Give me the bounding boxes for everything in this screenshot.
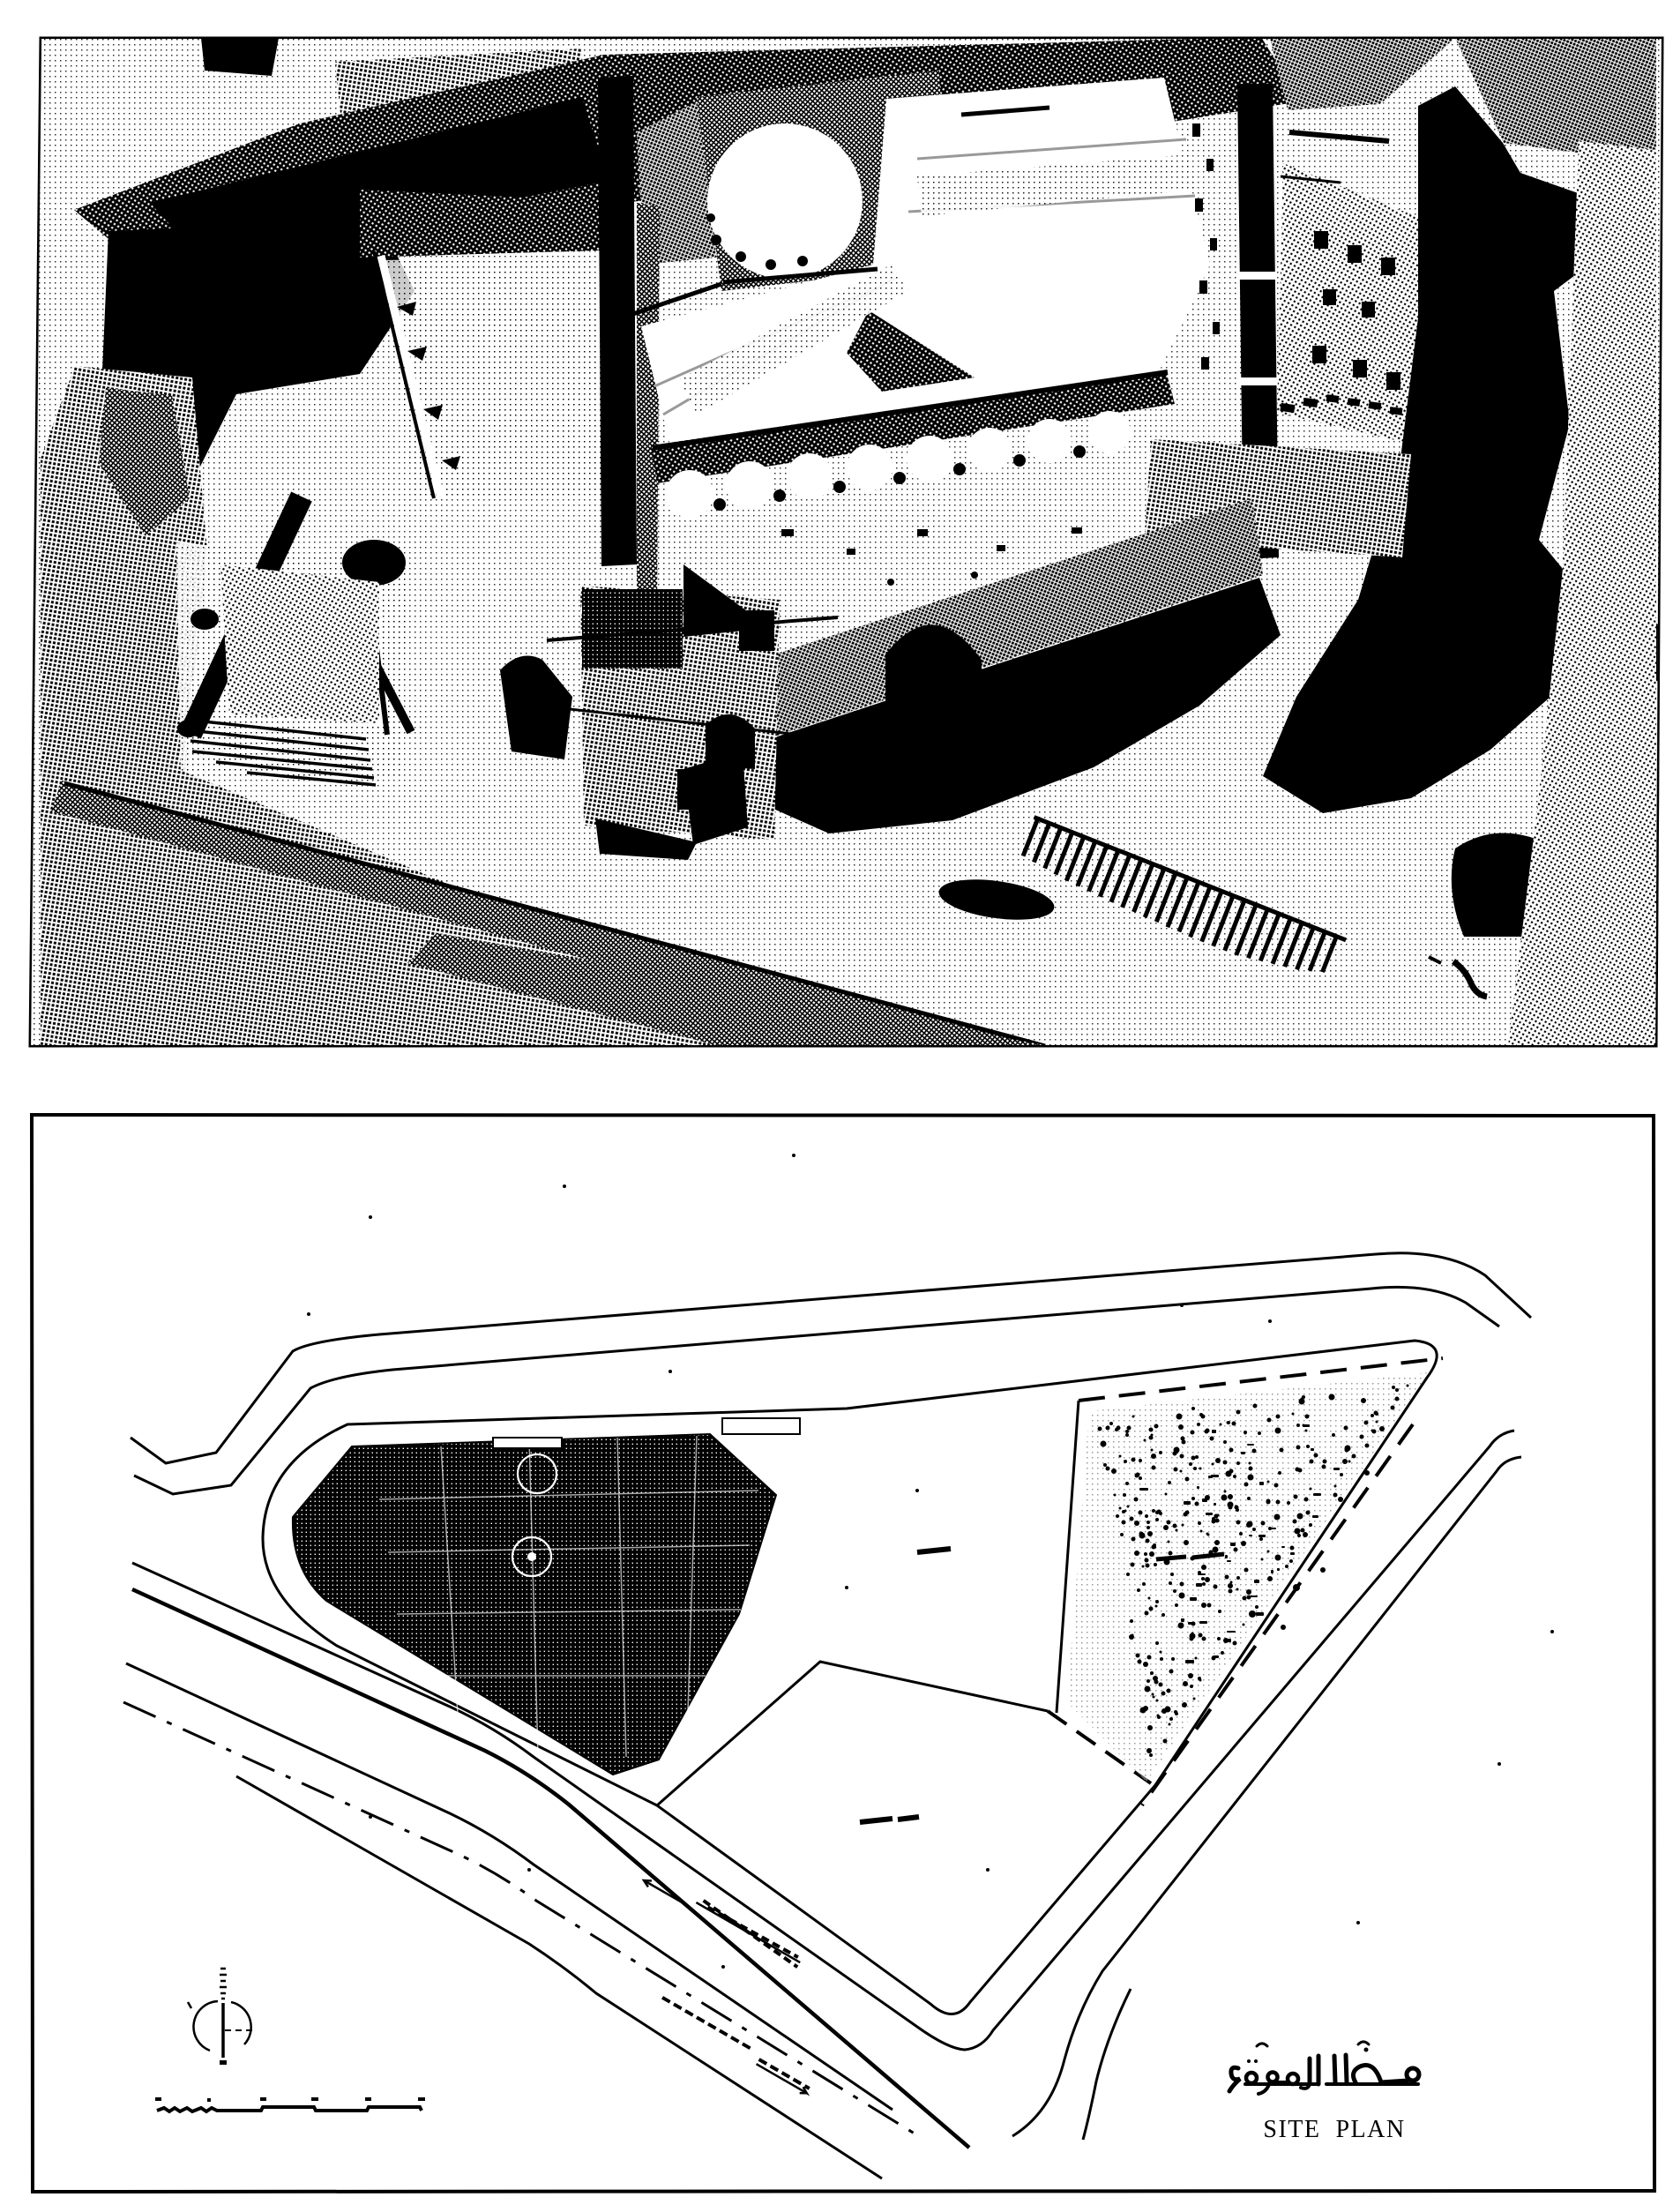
svg-text:SITE PLAN: SITE PLAN [1263, 2116, 1405, 2143]
